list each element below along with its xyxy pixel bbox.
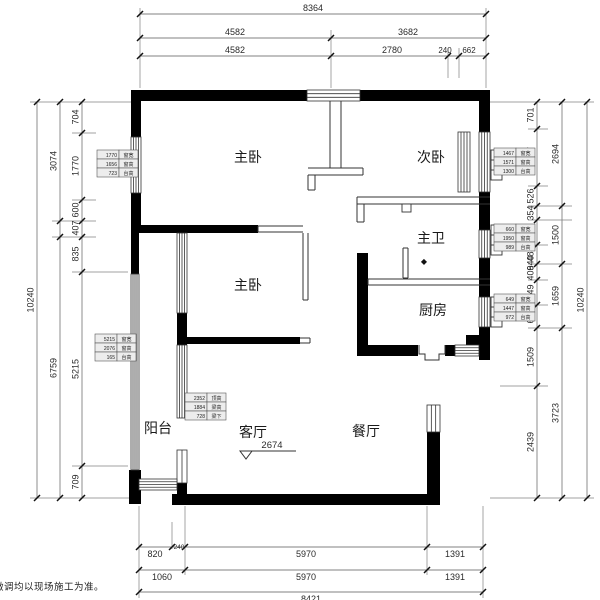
dimension-label: 2694 — [551, 144, 561, 164]
window-tag-table: 1467窗宽1571窗高1300台高 — [494, 148, 535, 175]
dimension-label: 3074 — [49, 151, 59, 171]
tag-value: 723 — [109, 171, 118, 177]
dimension-label: 2439 — [526, 432, 536, 452]
tag-value: 1300 — [503, 169, 514, 175]
bathroom-diamond-symbol: ◆ — [421, 257, 428, 266]
tag-label: 梁下 — [211, 413, 221, 420]
dimension-label: 240 — [174, 544, 185, 551]
tag-value: 989 — [506, 245, 515, 251]
dimension-label: 8421 — [301, 594, 321, 600]
dimension-label: 820 — [147, 549, 162, 559]
dimension-label: 704 — [71, 109, 81, 124]
living-room-leader: 2674 — [240, 440, 296, 459]
dimension-label: 1391 — [445, 572, 465, 582]
tag-value: 2076 — [104, 346, 115, 352]
dimension-label: 1509 — [526, 347, 536, 367]
room-label-master-bathroom: 主卫 — [417, 230, 445, 246]
window-balcony-outer — [131, 274, 139, 470]
dimension-label: 406 — [526, 265, 536, 280]
tag-value: 728 — [197, 414, 206, 420]
window-kitchen-bottom — [455, 345, 479, 356]
tag-label: 窗高 — [121, 345, 131, 352]
floor-plan-drawing: 8364458236824582278024066282024059701391… — [0, 0, 600, 600]
window-tag-table: 5215窗宽2076窗高165台高 — [95, 334, 136, 361]
door-notch — [402, 204, 411, 212]
window-tag-table: 1770窗宽1656窗高723台高 — [97, 150, 138, 177]
room-label-master-bedroom-upper: 主卧 — [234, 149, 262, 165]
diamond-icon: ◆ — [421, 257, 428, 266]
dimension-label: 4582 — [225, 45, 245, 55]
dimension-label: 709 — [71, 474, 81, 489]
window-top-wall — [307, 90, 360, 101]
tag-value: 1950 — [503, 236, 514, 242]
room-label-master-bedroom-lower: 主卧 — [234, 277, 262, 293]
window-tag-table: 2352顶高1884梁高728梁下 — [185, 393, 226, 420]
window-kitchen-side — [479, 297, 490, 327]
dimension-label: 5970 — [296, 549, 316, 559]
dimension-label: 2780 — [382, 45, 402, 55]
dimension-label: 1391 — [445, 549, 465, 559]
floor-plan-canvas: 8364458236824582278024066282024059701391… — [0, 0, 600, 600]
tag-value: 1467 — [503, 151, 514, 157]
dimension-label: 662 — [462, 46, 476, 55]
tag-label: 窗宽 — [121, 336, 131, 343]
dimension-label: 10240 — [576, 287, 586, 312]
dimension-label: 5215 — [71, 359, 81, 379]
tag-label: 顶高 — [211, 395, 221, 402]
room-label-second-bedroom: 次卧 — [417, 149, 445, 165]
window-tag-table: 660窗宽1950窗高989台高 — [494, 224, 535, 251]
tag-value: 972 — [506, 315, 515, 321]
tag-value: 1571 — [503, 160, 514, 166]
tag-label: 台高 — [123, 170, 133, 177]
tag-label: 窗宽 — [520, 226, 530, 233]
dimension-label: 1770 — [71, 156, 81, 176]
dimension-label: 4582 — [225, 27, 245, 37]
dimension-label: 3682 — [398, 27, 418, 37]
leader-arrow-icon — [240, 451, 252, 459]
room-label-living-room: 客厅 — [239, 424, 267, 440]
tag-label: 台高 — [520, 168, 530, 175]
thin-walls — [258, 101, 490, 360]
dimension-label: 526 — [526, 188, 536, 203]
dimension-label: 8364 — [303, 3, 323, 13]
dimension-label: 407 — [71, 220, 81, 235]
room-label-dining-room: 餐厅 — [352, 423, 380, 439]
tag-label: 窗宽 — [520, 150, 530, 157]
tag-value: 1884 — [194, 405, 205, 411]
kitchen-flue-notch — [419, 345, 445, 360]
dimension-label: 3723 — [551, 403, 561, 423]
room-label-kitchen: 厨房 — [419, 302, 447, 318]
tag-value: 1447 — [503, 306, 514, 312]
tag-label: 窗高 — [520, 305, 530, 312]
dimension-label: 701 — [526, 107, 536, 122]
window-bathroom — [479, 230, 490, 258]
dimension-label: 5970 — [296, 572, 316, 582]
window-second-bedroom — [479, 132, 490, 192]
leader-value: 2674 — [261, 440, 282, 451]
tag-value: 1656 — [106, 162, 117, 168]
tag-label: 窗高 — [123, 161, 133, 168]
tag-label: 窗宽 — [123, 152, 133, 159]
tag-value: 660 — [506, 227, 515, 233]
tag-label: 台高 — [520, 314, 530, 321]
tag-label: 窗高 — [520, 235, 530, 242]
dimension-label: 10240 — [26, 287, 36, 312]
dimension-label: 240 — [438, 46, 452, 55]
dimension-label: 1500 — [551, 225, 561, 245]
tag-value: 2352 — [194, 396, 205, 402]
tag-label: 梁高 — [211, 404, 221, 411]
tag-label: 窗高 — [520, 159, 530, 166]
dimension-label: 600 — [71, 202, 81, 217]
disclaimer-note: 微调均以现场施工为准。 — [0, 579, 104, 593]
window-tag-table: 649窗宽1447窗高972台高 — [494, 294, 535, 321]
closet-sliding-panel — [458, 132, 470, 192]
dimension-label: 354 — [526, 205, 536, 220]
balcony-partition-frame — [177, 450, 187, 483]
tag-value: 1770 — [106, 153, 117, 159]
window-balcony-partition-upper — [177, 233, 187, 313]
tag-label: 台高 — [121, 354, 131, 361]
dimension-label: 6759 — [49, 358, 59, 378]
window-dining — [427, 405, 440, 432]
tag-value: 5215 — [104, 337, 115, 343]
tag-label: 台高 — [520, 244, 530, 251]
tag-value: 165 — [107, 355, 116, 361]
room-label-balcony: 阳台 — [144, 420, 172, 436]
dimension-label: 835 — [71, 246, 81, 261]
tag-label: 窗宽 — [520, 296, 530, 303]
dimension-label: 1060 — [152, 572, 172, 582]
window-balcony-sill — [139, 479, 177, 490]
tag-value: 649 — [506, 297, 515, 303]
dimension-label: 1659 — [551, 286, 561, 306]
